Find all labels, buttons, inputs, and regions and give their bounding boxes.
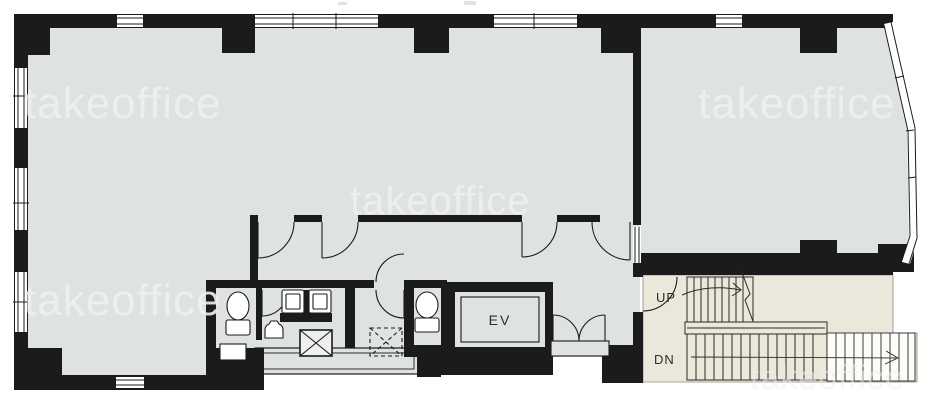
wall-divider [633, 53, 641, 225]
stairs-down-label: DN [654, 352, 675, 367]
stairs-up-label: UP [656, 290, 676, 305]
toilet-stall-1 [282, 290, 304, 313]
watermark-text: takeoffice [350, 179, 531, 223]
window-top-3 [494, 13, 577, 29]
shaft-x-solid [300, 330, 332, 356]
service-sink [220, 344, 246, 360]
elevator-label: EV [489, 312, 512, 328]
toilet-fixture-left [226, 292, 250, 335]
watermark-text: takeoffice [750, 359, 905, 397]
stairs-up-flight [687, 270, 754, 324]
elevator: EV [455, 292, 545, 347]
floor-plan: EV [0, 0, 935, 404]
stairs-landing [685, 322, 827, 334]
toilet-fixture-right [415, 292, 439, 332]
window-top-1 [117, 15, 143, 27]
window-top-4 [716, 15, 742, 27]
wall-top [14, 14, 893, 28]
elevator-shaft-wall [441, 282, 553, 292]
window-bottom [116, 377, 144, 388]
watermark-text: takeoffice [24, 79, 222, 128]
toilet-stall-2 [309, 290, 331, 313]
floor-plan-canvas: EV [0, 0, 935, 404]
watermark-text: takeoffice [698, 79, 896, 128]
watermark-text: takeoffice [24, 276, 222, 325]
right-room-floor [641, 20, 916, 262]
scan-artifacts [338, 1, 476, 5]
window-divider-glass [633, 227, 641, 263]
balcony-ledge [255, 348, 419, 374]
window-top-2 [255, 13, 378, 29]
window-left-2 [13, 168, 29, 230]
